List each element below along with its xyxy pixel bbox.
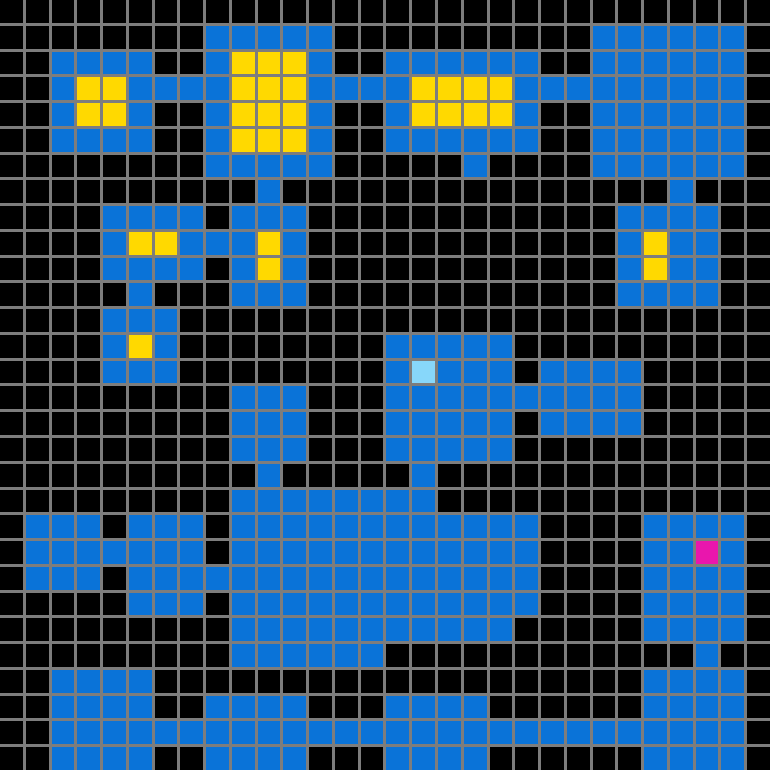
floor-cell[interactable] [283,618,306,641]
empty-cell[interactable] [721,438,744,461]
empty-cell[interactable] [103,515,126,538]
empty-cell[interactable] [77,593,100,616]
empty-cell[interactable] [541,335,564,358]
floor-cell[interactable] [180,258,203,281]
empty-cell[interactable] [129,490,152,513]
floor-cell[interactable] [593,361,616,384]
floor-cell[interactable] [515,52,538,75]
floor-cell[interactable] [464,386,487,409]
floor-cell[interactable] [335,490,358,513]
empty-cell[interactable] [696,335,719,358]
empty-cell[interactable] [593,464,616,487]
empty-cell[interactable] [747,490,770,513]
floor-cell[interactable] [206,77,229,100]
floor-cell[interactable] [593,155,616,178]
empty-cell[interactable] [386,309,409,332]
floor-cell[interactable] [670,541,693,564]
empty-cell[interactable] [490,26,513,49]
empty-cell[interactable] [180,618,203,641]
empty-cell[interactable] [386,180,409,203]
floor-cell[interactable] [670,77,693,100]
empty-cell[interactable] [515,335,538,358]
empty-cell[interactable] [180,155,203,178]
floor-cell[interactable] [206,103,229,126]
empty-cell[interactable] [155,0,178,23]
empty-cell[interactable] [77,232,100,255]
empty-cell[interactable] [464,232,487,255]
empty-cell[interactable] [618,464,641,487]
floor-cell[interactable] [696,593,719,616]
empty-cell[interactable] [747,721,770,744]
floor-cell[interactable] [258,155,281,178]
empty-cell[interactable] [618,438,641,461]
floor-cell[interactable] [77,515,100,538]
floor-cell[interactable] [438,593,461,616]
empty-cell[interactable] [283,309,306,332]
floor-cell[interactable] [26,541,49,564]
floor-cell[interactable] [618,232,641,255]
empty-cell[interactable] [232,335,255,358]
floor-cell[interactable] [283,747,306,770]
empty-cell[interactable] [515,232,538,255]
empty-cell[interactable] [747,206,770,229]
floor-cell[interactable] [696,696,719,719]
empty-cell[interactable] [593,541,616,564]
floor-cell[interactable] [361,541,384,564]
empty-cell[interactable] [361,206,384,229]
empty-cell[interactable] [567,206,590,229]
floor-cell[interactable] [129,721,152,744]
floor-cell[interactable] [335,721,358,744]
empty-cell[interactable] [52,464,75,487]
empty-cell[interactable] [206,386,229,409]
empty-cell[interactable] [386,644,409,667]
empty-cell[interactable] [52,155,75,178]
floor-cell[interactable] [670,618,693,641]
gold-cell[interactable] [412,103,435,126]
empty-cell[interactable] [541,232,564,255]
empty-cell[interactable] [464,490,487,513]
empty-cell[interactable] [567,258,590,281]
floor-cell[interactable] [335,593,358,616]
empty-cell[interactable] [721,644,744,667]
floor-cell[interactable] [386,129,409,152]
empty-cell[interactable] [721,232,744,255]
floor-cell[interactable] [515,593,538,616]
empty-cell[interactable] [593,490,616,513]
empty-cell[interactable] [490,747,513,770]
empty-cell[interactable] [0,541,23,564]
empty-cell[interactable] [515,670,538,693]
floor-cell[interactable] [721,515,744,538]
empty-cell[interactable] [0,283,23,306]
empty-cell[interactable] [335,464,358,487]
floor-cell[interactable] [52,541,75,564]
empty-cell[interactable] [77,438,100,461]
empty-cell[interactable] [541,206,564,229]
empty-cell[interactable] [77,309,100,332]
floor-cell[interactable] [386,696,409,719]
floor-cell[interactable] [129,129,152,152]
floor-cell[interactable] [283,386,306,409]
floor-cell[interactable] [283,232,306,255]
empty-cell[interactable] [0,593,23,616]
floor-cell[interactable] [644,77,667,100]
gold-cell[interactable] [258,258,281,281]
floor-cell[interactable] [670,567,693,590]
empty-cell[interactable] [747,412,770,435]
floor-cell[interactable] [490,386,513,409]
empty-cell[interactable] [721,206,744,229]
empty-cell[interactable] [464,464,487,487]
empty-cell[interactable] [747,103,770,126]
empty-cell[interactable] [77,258,100,281]
floor-cell[interactable] [696,26,719,49]
floor-cell[interactable] [309,103,332,126]
empty-cell[interactable] [567,438,590,461]
empty-cell[interactable] [541,26,564,49]
empty-cell[interactable] [593,670,616,693]
empty-cell[interactable] [541,644,564,667]
floor-cell[interactable] [232,386,255,409]
floor-cell[interactable] [670,52,693,75]
floor-cell[interactable] [232,258,255,281]
empty-cell[interactable] [361,26,384,49]
empty-cell[interactable] [206,618,229,641]
floor-cell[interactable] [464,747,487,770]
floor-cell[interactable] [464,412,487,435]
empty-cell[interactable] [412,309,435,332]
floor-cell[interactable] [386,412,409,435]
empty-cell[interactable] [0,309,23,332]
floor-cell[interactable] [593,386,616,409]
empty-cell[interactable] [386,155,409,178]
empty-cell[interactable] [438,670,461,693]
floor-cell[interactable] [490,129,513,152]
empty-cell[interactable] [696,412,719,435]
empty-cell[interactable] [0,335,23,358]
floor-cell[interactable] [721,541,744,564]
empty-cell[interactable] [26,180,49,203]
floor-cell[interactable] [386,438,409,461]
empty-cell[interactable] [361,52,384,75]
floor-cell[interactable] [232,412,255,435]
floor-cell[interactable] [670,696,693,719]
floor-cell[interactable] [232,515,255,538]
floor-cell[interactable] [52,129,75,152]
floor-cell[interactable] [232,567,255,590]
empty-cell[interactable] [593,180,616,203]
floor-cell[interactable] [670,180,693,203]
floor-cell[interactable] [644,283,667,306]
floor-cell[interactable] [155,309,178,332]
gold-cell[interactable] [232,52,255,75]
floor-cell[interactable] [696,155,719,178]
empty-cell[interactable] [335,438,358,461]
empty-cell[interactable] [721,335,744,358]
floor-cell[interactable] [77,567,100,590]
floor-cell[interactable] [490,618,513,641]
floor-cell[interactable] [464,696,487,719]
empty-cell[interactable] [515,361,538,384]
floor-cell[interactable] [721,129,744,152]
empty-cell[interactable] [438,232,461,255]
empty-cell[interactable] [206,258,229,281]
empty-cell[interactable] [206,283,229,306]
floor-cell[interactable] [129,206,152,229]
empty-cell[interactable] [593,232,616,255]
empty-cell[interactable] [232,464,255,487]
empty-cell[interactable] [77,26,100,49]
empty-cell[interactable] [129,0,152,23]
empty-cell[interactable] [438,283,461,306]
empty-cell[interactable] [26,52,49,75]
floor-cell[interactable] [309,52,332,75]
empty-cell[interactable] [77,464,100,487]
empty-cell[interactable] [618,335,641,358]
empty-cell[interactable] [567,180,590,203]
floor-cell[interactable] [206,129,229,152]
empty-cell[interactable] [26,696,49,719]
empty-cell[interactable] [180,335,203,358]
empty-cell[interactable] [309,361,332,384]
floor-cell[interactable] [129,747,152,770]
empty-cell[interactable] [309,283,332,306]
floor-cell[interactable] [103,541,126,564]
floor-cell[interactable] [361,490,384,513]
empty-cell[interactable] [618,670,641,693]
empty-cell[interactable] [721,361,744,384]
empty-cell[interactable] [464,0,487,23]
empty-cell[interactable] [335,180,358,203]
floor-cell[interactable] [77,747,100,770]
floor-cell[interactable] [258,180,281,203]
floor-cell[interactable] [52,77,75,100]
floor-cell[interactable] [283,721,306,744]
empty-cell[interactable] [155,52,178,75]
empty-cell[interactable] [335,129,358,152]
floor-cell[interactable] [155,361,178,384]
empty-cell[interactable] [180,412,203,435]
empty-cell[interactable] [361,747,384,770]
empty-cell[interactable] [490,155,513,178]
floor-cell[interactable] [515,103,538,126]
empty-cell[interactable] [26,0,49,23]
floor-cell[interactable] [155,515,178,538]
empty-cell[interactable] [696,490,719,513]
floor-cell[interactable] [670,129,693,152]
empty-cell[interactable] [490,206,513,229]
floor-cell[interactable] [464,52,487,75]
gold-cell[interactable] [438,103,461,126]
floor-cell[interactable] [412,567,435,590]
empty-cell[interactable] [77,206,100,229]
empty-cell[interactable] [155,464,178,487]
empty-cell[interactable] [335,52,358,75]
empty-cell[interactable] [515,644,538,667]
empty-cell[interactable] [52,309,75,332]
empty-cell[interactable] [361,696,384,719]
empty-cell[interactable] [670,361,693,384]
empty-cell[interactable] [747,77,770,100]
floor-cell[interactable] [644,696,667,719]
floor-cell[interactable] [438,747,461,770]
floor-cell[interactable] [438,52,461,75]
empty-cell[interactable] [515,438,538,461]
floor-cell[interactable] [515,541,538,564]
gold-cell[interactable] [103,77,126,100]
floor-cell[interactable] [77,721,100,744]
empty-cell[interactable] [515,747,538,770]
empty-cell[interactable] [52,386,75,409]
empty-cell[interactable] [721,490,744,513]
floor-cell[interactable] [309,644,332,667]
empty-cell[interactable] [515,490,538,513]
empty-cell[interactable] [361,155,384,178]
empty-cell[interactable] [103,464,126,487]
empty-cell[interactable] [155,747,178,770]
floor-cell[interactable] [77,696,100,719]
empty-cell[interactable] [593,258,616,281]
floor-cell[interactable] [52,52,75,75]
floor-cell[interactable] [258,26,281,49]
empty-cell[interactable] [335,232,358,255]
empty-cell[interactable] [567,232,590,255]
floor-cell[interactable] [490,335,513,358]
empty-cell[interactable] [77,386,100,409]
empty-cell[interactable] [541,283,564,306]
floor-cell[interactable] [386,52,409,75]
empty-cell[interactable] [670,386,693,409]
floor-cell[interactable] [721,567,744,590]
floor-cell[interactable] [412,515,435,538]
empty-cell[interactable] [26,258,49,281]
empty-cell[interactable] [103,0,126,23]
gold-cell[interactable] [438,77,461,100]
empty-cell[interactable] [26,206,49,229]
floor-cell[interactable] [283,258,306,281]
floor-cell[interactable] [309,490,332,513]
gold-cell[interactable] [464,103,487,126]
floor-cell[interactable] [386,618,409,641]
empty-cell[interactable] [206,0,229,23]
empty-cell[interactable] [618,0,641,23]
floor-cell[interactable] [464,567,487,590]
floor-cell[interactable] [618,283,641,306]
floor-cell[interactable] [670,103,693,126]
empty-cell[interactable] [155,438,178,461]
floor-cell[interactable] [644,52,667,75]
floor-cell[interactable] [696,258,719,281]
floor-cell[interactable] [283,155,306,178]
floor-cell[interactable] [283,206,306,229]
empty-cell[interactable] [721,412,744,435]
empty-cell[interactable] [412,258,435,281]
empty-cell[interactable] [155,103,178,126]
empty-cell[interactable] [0,567,23,590]
empty-cell[interactable] [438,258,461,281]
empty-cell[interactable] [438,26,461,49]
empty-cell[interactable] [77,180,100,203]
floor-cell[interactable] [464,129,487,152]
floor-cell[interactable] [386,103,409,126]
floor-cell[interactable] [644,541,667,564]
empty-cell[interactable] [77,361,100,384]
floor-cell[interactable] [464,515,487,538]
empty-cell[interactable] [77,335,100,358]
empty-cell[interactable] [335,309,358,332]
floor-cell[interactable] [206,26,229,49]
floor-cell[interactable] [412,386,435,409]
floor-cell[interactable] [464,155,487,178]
empty-cell[interactable] [103,180,126,203]
floor-cell[interactable] [309,26,332,49]
floor-cell[interactable] [232,438,255,461]
gold-cell[interactable] [464,77,487,100]
empty-cell[interactable] [77,155,100,178]
floor-cell[interactable] [412,490,435,513]
empty-cell[interactable] [180,438,203,461]
floor-cell[interactable] [258,490,281,513]
empty-cell[interactable] [438,490,461,513]
floor-cell[interactable] [103,258,126,281]
floor-cell[interactable] [670,155,693,178]
floor-cell[interactable] [644,747,667,770]
floor-cell[interactable] [129,593,152,616]
empty-cell[interactable] [26,129,49,152]
empty-cell[interactable] [232,0,255,23]
floor-cell[interactable] [670,721,693,744]
empty-cell[interactable] [515,26,538,49]
empty-cell[interactable] [155,180,178,203]
floor-cell[interactable] [77,541,100,564]
floor-cell[interactable] [567,77,590,100]
floor-cell[interactable] [232,721,255,744]
floor-cell[interactable] [541,77,564,100]
floor-cell[interactable] [593,129,616,152]
floor-cell[interactable] [593,26,616,49]
empty-cell[interactable] [567,283,590,306]
empty-cell[interactable] [0,618,23,641]
empty-cell[interactable] [232,670,255,693]
floor-cell[interactable] [412,747,435,770]
empty-cell[interactable] [386,283,409,306]
empty-cell[interactable] [515,696,538,719]
floor-cell[interactable] [232,644,255,667]
empty-cell[interactable] [618,747,641,770]
empty-cell[interactable] [567,129,590,152]
floor-cell[interactable] [438,515,461,538]
empty-cell[interactable] [567,541,590,564]
floor-cell[interactable] [309,541,332,564]
empty-cell[interactable] [103,283,126,306]
floor-cell[interactable] [206,155,229,178]
empty-cell[interactable] [0,52,23,75]
floor-cell[interactable] [696,206,719,229]
gold-cell[interactable] [412,77,435,100]
floor-cell[interactable] [412,593,435,616]
floor-cell[interactable] [490,361,513,384]
empty-cell[interactable] [386,258,409,281]
empty-cell[interactable] [309,0,332,23]
floor-cell[interactable] [180,206,203,229]
empty-cell[interactable] [464,258,487,281]
empty-cell[interactable] [180,747,203,770]
empty-cell[interactable] [206,438,229,461]
empty-cell[interactable] [206,309,229,332]
floor-cell[interactable] [155,206,178,229]
floor-cell[interactable] [696,52,719,75]
